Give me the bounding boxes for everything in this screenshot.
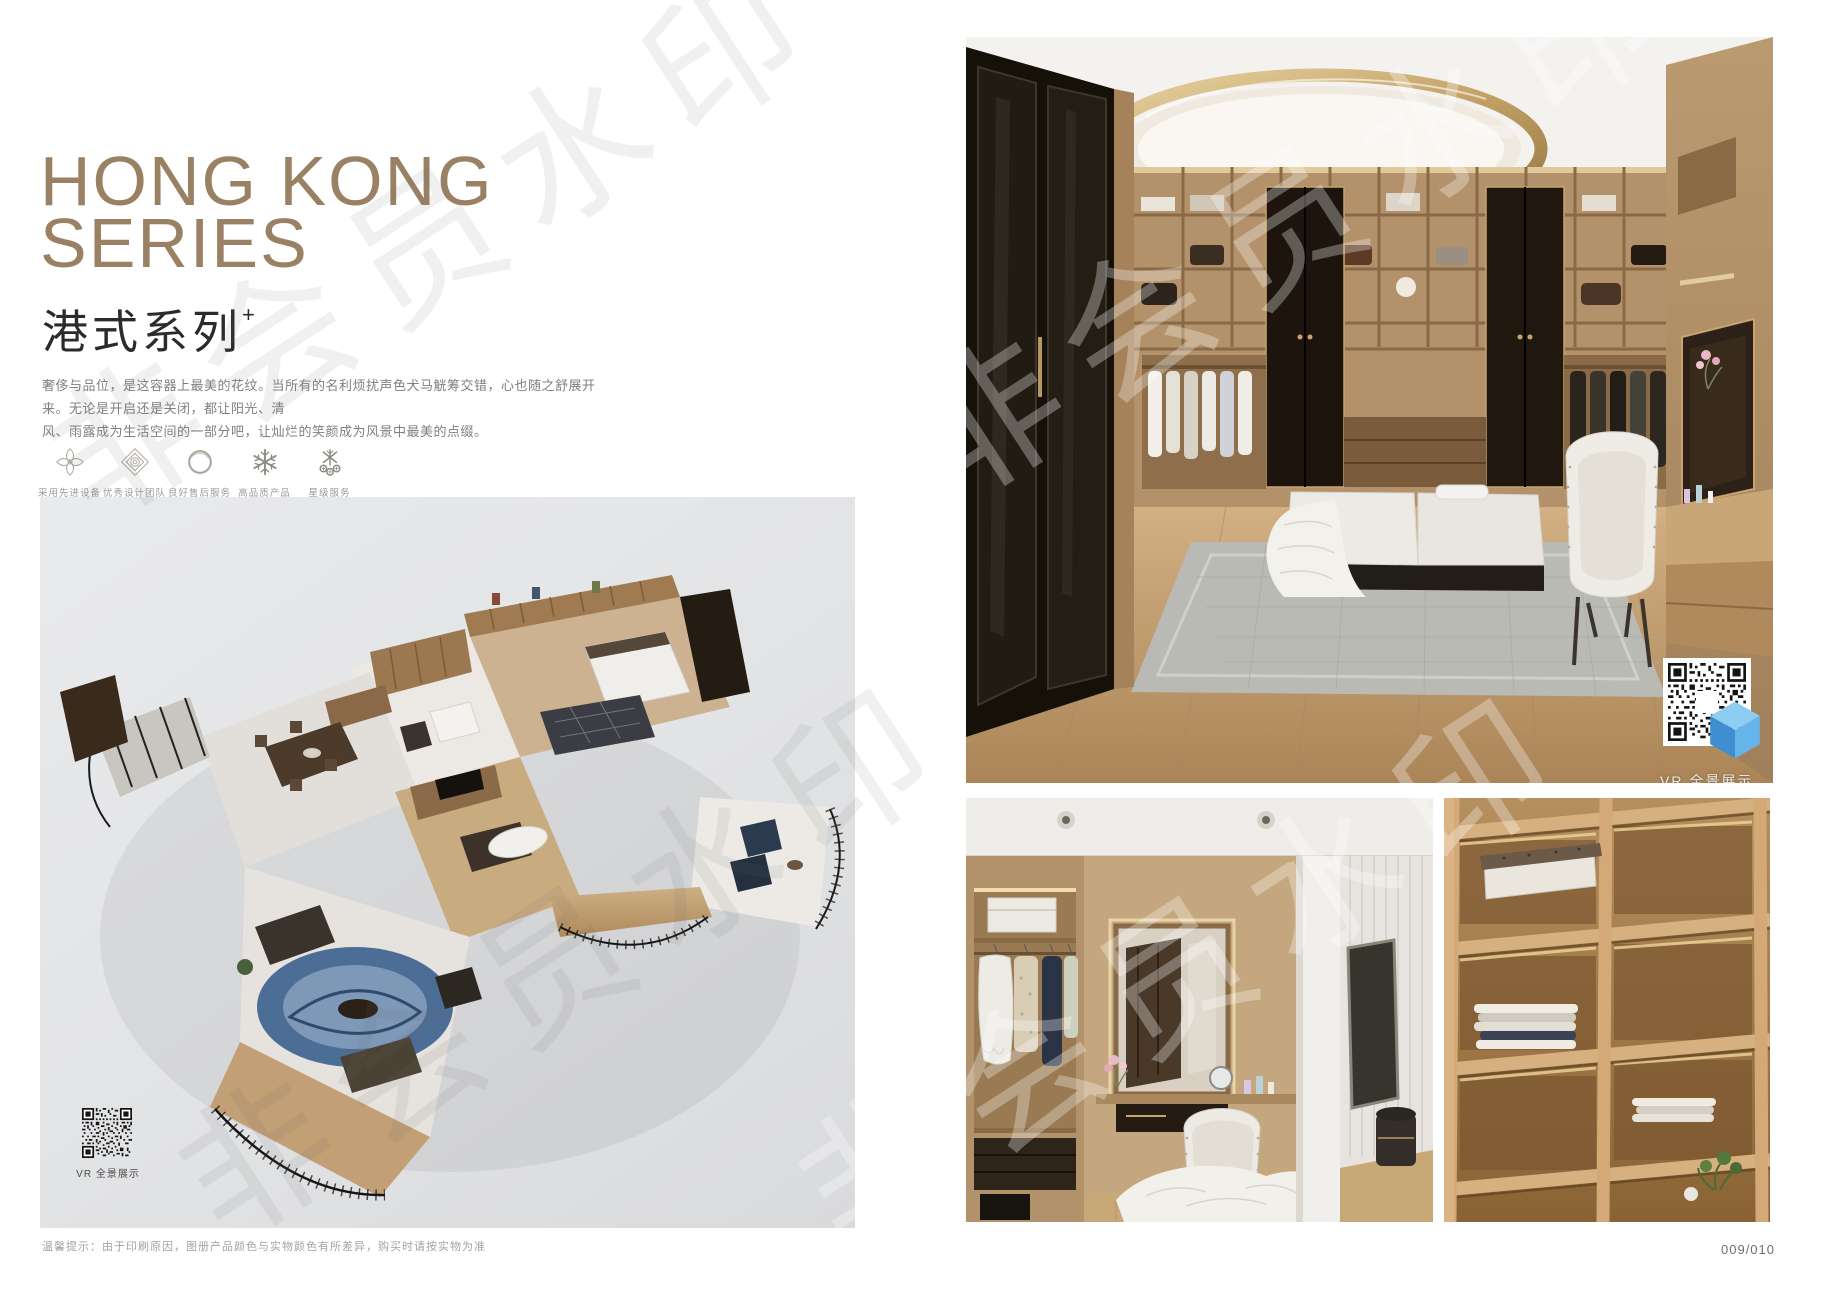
snowflake-icon <box>249 446 281 478</box>
floorplan-qr-caption: VR 全景展示 <box>58 1165 158 1180</box>
feature-advanced-equipment: 采用先进设备 <box>37 446 102 499</box>
qr-cube-logo <box>1696 691 1718 713</box>
diamond-ornament-icon <box>119 446 151 478</box>
catalog-page: HONG KONG SERIES 港式系列+ 奢侈与品位，是这容器上最美的花纹。… <box>0 0 1836 1307</box>
ceiling <box>966 798 1433 856</box>
feature-quality-product: 高品质产品 <box>232 446 297 499</box>
series-subtitle-text: 港式系列 <box>42 306 242 358</box>
intro-line1: 奢侈与品位，是这容器上最美的花纹。当所有的名利烦扰声色犬马觥筹交错，心也随之舒展… <box>42 374 617 420</box>
open-wardrobe <box>966 856 1084 1222</box>
intro-line2: 风、雨露成为生活空间的一部分吧，让灿烂的笑颜成为风景中最美的点缀。 <box>42 420 617 443</box>
footer-note: 温馨提示：由于印刷原因，图册产品颜色与实物颜色有所差异，购买时请按实物为准 <box>42 1238 486 1254</box>
feature-star-service: 星级服务 <box>297 446 362 499</box>
series-subtitle-plus: + <box>242 302 259 327</box>
dresser-photo-render <box>966 798 1433 1222</box>
floorplan-render <box>40 497 855 1228</box>
page-number: 009/010 <box>1721 1242 1775 1257</box>
hanging-clothes-left <box>1142 355 1266 489</box>
pillar-and-far-room <box>1296 856 1433 1222</box>
flower-ornament-icon <box>54 446 86 478</box>
feature-list: 采用先进设备 优秀设计团队 良好售后服务 高品质产品 <box>37 446 362 499</box>
ring-icon <box>184 446 216 478</box>
main-photo-render <box>966 37 1773 783</box>
shelf-photo <box>1444 798 1770 1222</box>
center-drawers <box>1344 417 1486 487</box>
feature-design-team: 优秀设计团队 <box>102 446 167 499</box>
series-title-line1: HONG KONG <box>40 150 494 212</box>
floorplan-qr-code <box>82 1108 132 1158</box>
main-photo-qr-code <box>1663 658 1751 746</box>
main-photo-qr-caption: VR 全景展示 <box>1660 771 1773 783</box>
folded-clothes-stack-right <box>1632 1098 1716 1122</box>
star-service-icon <box>314 446 346 478</box>
series-title: HONG KONG SERIES <box>40 150 494 274</box>
feature-after-sales: 良好售后服务 <box>167 446 232 499</box>
series-subtitle: 港式系列+ <box>42 296 259 362</box>
main-photo: VR 全景展示 <box>966 37 1773 783</box>
series-title-line2: SERIES <box>40 212 494 274</box>
shelf-photo-render <box>1444 798 1770 1222</box>
front-edge <box>1444 798 1454 1222</box>
intro-paragraph: 奢侈与品位，是这容器上最美的花纹。当所有的名利烦扰声色犬马觥筹交错，心也随之舒展… <box>42 374 617 443</box>
bed-bench <box>1267 485 1544 597</box>
folded-clothes-stack-left <box>1474 1004 1578 1049</box>
dresser-photo <box>966 798 1433 1222</box>
glass-wardrobe-left <box>966 47 1134 737</box>
floorplan-image: VR 全景展示 <box>40 497 855 1228</box>
